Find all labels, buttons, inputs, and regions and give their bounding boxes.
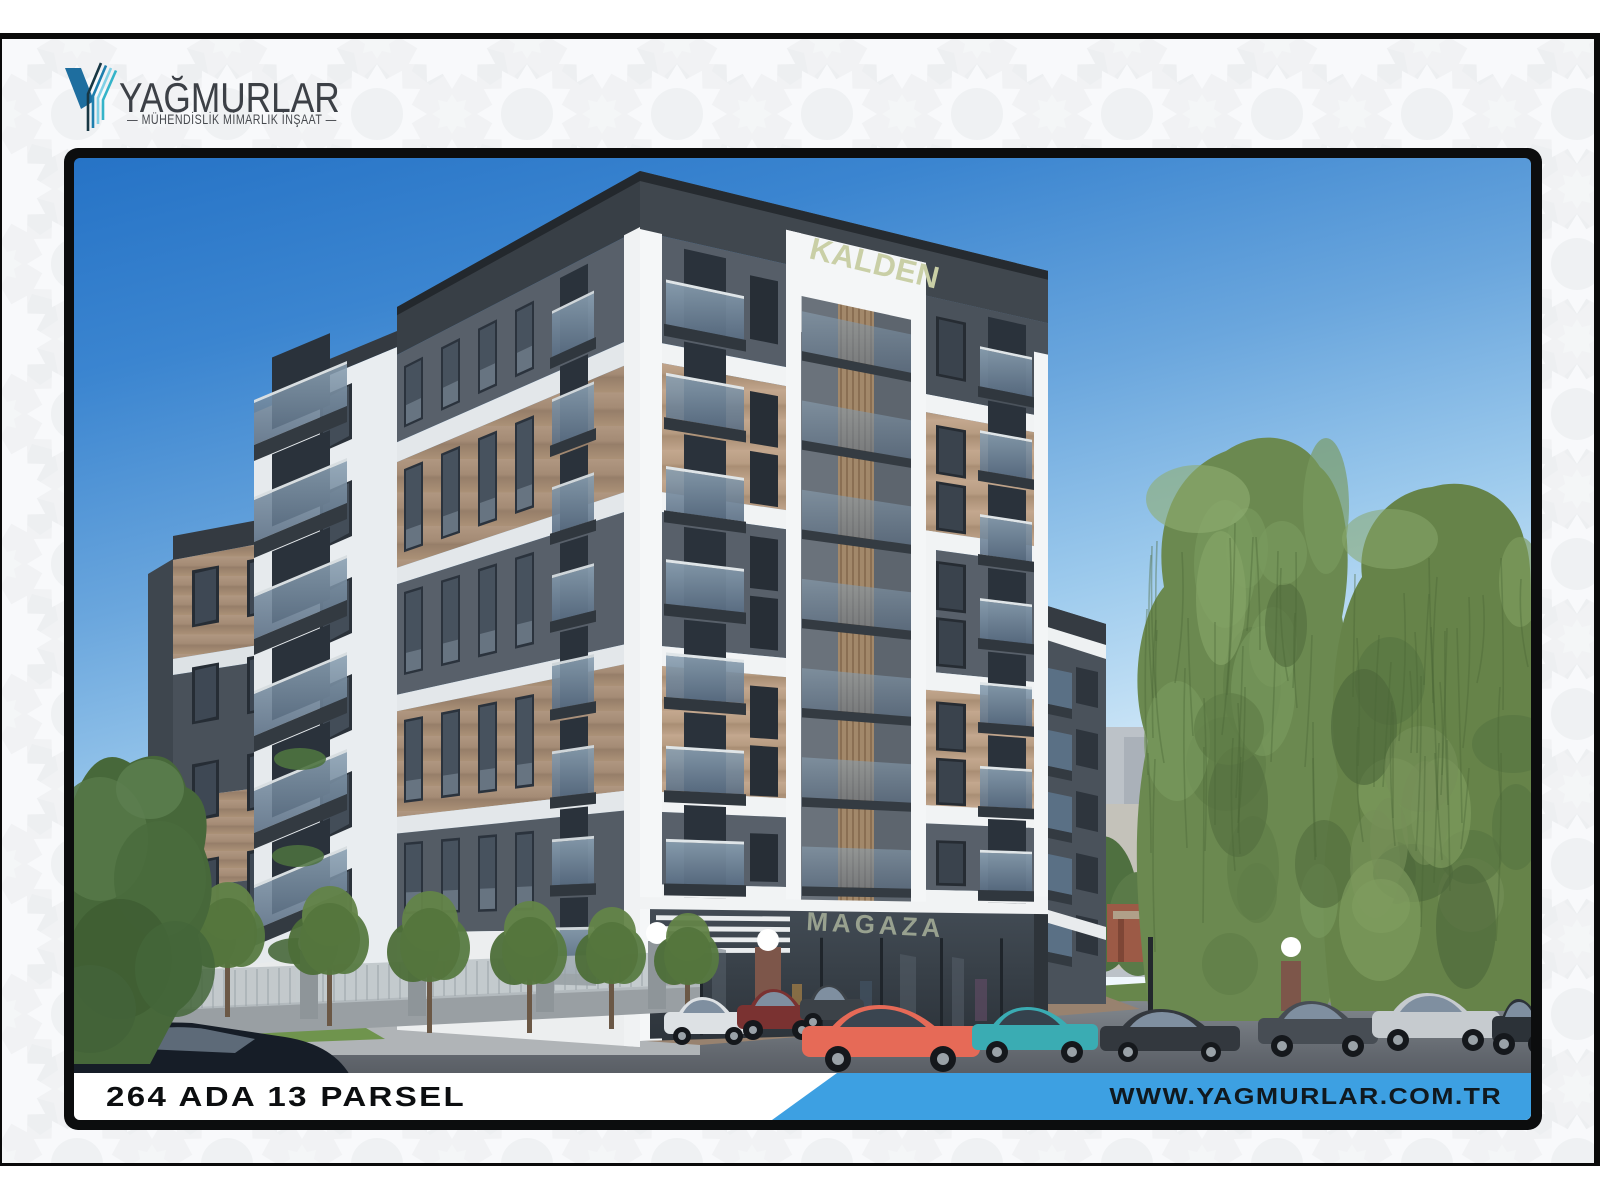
svg-text:— MÜHENDİSLİK MİMARLIK İNŞAAT: — MÜHENDİSLİK MİMARLIK İNŞAAT — [127, 112, 337, 128]
svg-text:264 ADA 13 PARSEL: 264 ADA 13 PARSEL [106, 1081, 466, 1112]
svg-text:WWW.YAGMURLAR.COM.TR: WWW.YAGMURLAR.COM.TR [1109, 1084, 1502, 1110]
